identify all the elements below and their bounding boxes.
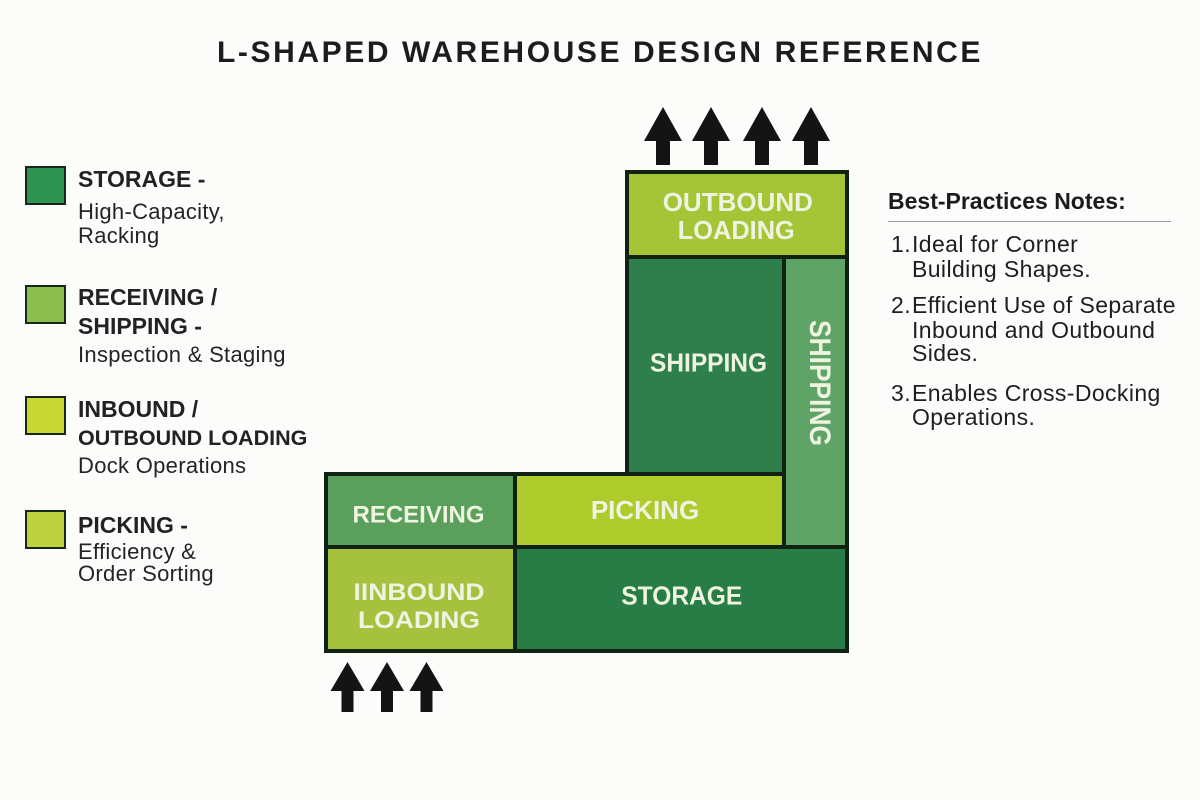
svg-text:OUTBOUND: OUTBOUND: [663, 187, 813, 217]
svg-text:SHIPPING: SHIPPING: [803, 320, 836, 446]
svg-text:RECEIVING: RECEIVING: [352, 501, 484, 528]
svg-text:LOADING: LOADING: [358, 607, 480, 634]
svg-text:LOADING: LOADING: [678, 215, 795, 245]
svg-text:PICKING: PICKING: [591, 495, 699, 525]
svg-text:SHIPPING: SHIPPING: [650, 347, 767, 377]
svg-text:IINBOUND: IINBOUND: [354, 579, 485, 606]
svg-text:STORAGE: STORAGE: [621, 581, 742, 611]
